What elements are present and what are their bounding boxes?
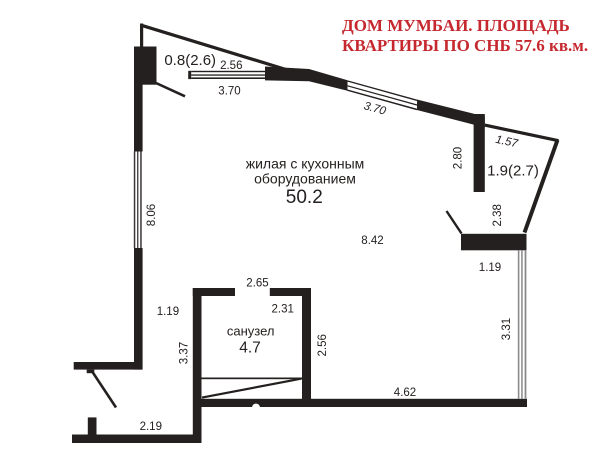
svg-text:оборудованием: оборудованием xyxy=(254,170,356,186)
svg-text:1.57: 1.57 xyxy=(494,134,519,151)
svg-text:2.56: 2.56 xyxy=(317,334,329,356)
svg-text:2.19: 2.19 xyxy=(140,421,162,433)
svg-text:2.38: 2.38 xyxy=(492,204,504,226)
svg-text:санузел: санузел xyxy=(227,324,275,339)
svg-text:2.80: 2.80 xyxy=(453,147,465,169)
svg-text:8.06: 8.06 xyxy=(146,204,158,226)
svg-text:3.70: 3.70 xyxy=(362,100,387,118)
svg-text:4.7: 4.7 xyxy=(239,340,261,357)
svg-text:КВАРТИРЫ ПО СНБ 57.6 кв.м.: КВАРТИРЫ ПО СНБ 57.6 кв.м. xyxy=(342,36,588,55)
svg-text:50.2: 50.2 xyxy=(286,187,323,208)
svg-text:3.31: 3.31 xyxy=(501,318,513,340)
svg-text:1.19: 1.19 xyxy=(157,306,179,318)
svg-text:8.42: 8.42 xyxy=(361,235,383,247)
svg-text:2.56: 2.56 xyxy=(220,60,242,72)
svg-text:0.8(2.6): 0.8(2.6) xyxy=(164,52,216,69)
svg-text:2.31: 2.31 xyxy=(272,303,294,315)
svg-text:1.19: 1.19 xyxy=(479,262,501,274)
svg-text:2.65: 2.65 xyxy=(246,277,268,289)
svg-text:жилая с кухонным: жилая с кухонным xyxy=(246,155,365,171)
svg-text:3.37: 3.37 xyxy=(179,342,191,364)
svg-text:4.62: 4.62 xyxy=(394,387,416,399)
svg-text:3.70: 3.70 xyxy=(218,86,240,98)
svg-text:1.9(2.7): 1.9(2.7) xyxy=(487,163,539,180)
svg-text:ДОМ МУМБАИ. ПЛОЩАДЬ: ДОМ МУМБАИ. ПЛОЩАДЬ xyxy=(342,16,570,35)
